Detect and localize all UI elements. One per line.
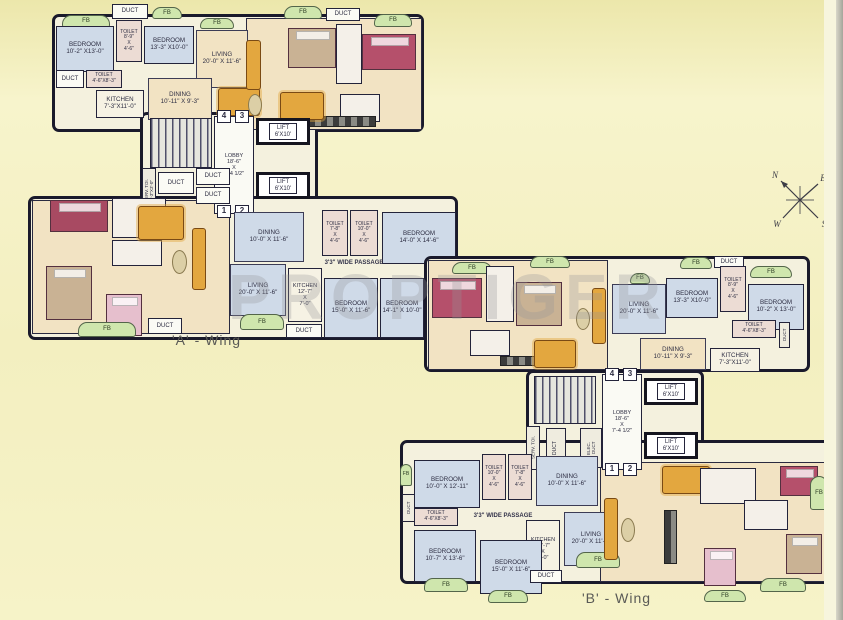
duct: DUCT <box>158 172 194 194</box>
lift: LIFT 6'X10' <box>644 432 698 459</box>
compass-n: N <box>771 170 779 180</box>
balcony-fb: FB <box>78 322 136 337</box>
rug <box>576 308 590 330</box>
sofa <box>246 40 261 90</box>
room-dining: DINING 10'-0" X 11'-6" <box>536 456 598 506</box>
room-bedroom: BEDROOM 10'-0" X 12'-11" <box>414 460 480 508</box>
lift-label: LIFT 6'X10' <box>657 437 685 455</box>
duct: DUCT <box>326 8 360 21</box>
room-toilet: TOILET 4'-6"X8'-3" <box>732 320 776 338</box>
sofa <box>592 288 606 344</box>
duct: DUCT <box>286 324 322 338</box>
bed <box>432 278 482 318</box>
balcony-fb: FB <box>400 464 412 486</box>
flat-number: 3 <box>623 368 637 381</box>
bed <box>50 200 108 232</box>
room-living: LIVING 20'-0" X 11'-6" <box>230 264 286 316</box>
balcony-fb: FB <box>750 266 792 278</box>
lift: LIFT 6'X10' <box>256 118 310 145</box>
room-dining: DINING 10'-11" X 9'-3" <box>640 338 706 370</box>
room-toilet: TOILET 4'-6"X8'-3" <box>86 70 122 88</box>
sofa <box>604 498 618 560</box>
bed-pillow <box>440 281 476 290</box>
page-edge-dark <box>836 0 843 620</box>
room-bedroom: BEDROOM 15'-0" X 11'-6" <box>324 278 378 338</box>
bed-pillow <box>59 203 100 212</box>
dining-table <box>534 340 576 368</box>
balcony-fb: FB <box>530 256 570 268</box>
balcony-fb: FB <box>424 578 468 592</box>
room-toilet: TOILET 10'-0" X 4'-6" <box>482 454 506 500</box>
bed-pillow <box>371 37 409 46</box>
floorplan-page: FBDUCTFBFBBEDROOM 10'-2" X13'-0"TOILET 8… <box>0 0 843 620</box>
dining-table <box>280 92 324 120</box>
wing-b-label: 'B' - Wing <box>582 590 651 606</box>
staircase <box>534 376 596 424</box>
bed-pillow <box>112 297 138 306</box>
room-bedroom: BEDROOM 14'-1" X 10'-0" <box>380 278 424 338</box>
duct: DUCT <box>196 187 230 204</box>
balcony-fb: FB <box>152 7 182 19</box>
room-dining: DINING 10'-11" X 9'-3" <box>148 78 212 120</box>
toilet-fixtures <box>470 330 510 356</box>
bed <box>704 548 736 586</box>
room-toilet: TOILET 8'-9" X 4'-6" <box>116 20 142 62</box>
balcony-fb: FB <box>680 257 712 269</box>
lift: LIFT 6'X10' <box>256 172 310 199</box>
bed-pillow <box>792 537 818 546</box>
wing-a-label: 'A' - Wing <box>172 332 241 348</box>
duct-vertical: DUCT <box>779 322 790 348</box>
flat-number: 1 <box>605 463 619 476</box>
flat-number: 1 <box>217 205 231 218</box>
room-toilet: TOILET 7'-8" X 4'-6" <box>508 454 532 500</box>
balcony-fb: FB <box>488 590 528 603</box>
toilet-fixtures <box>112 240 162 266</box>
kitchen-counter <box>664 510 677 564</box>
staircase <box>150 118 212 168</box>
lift: LIFT 6'X10' <box>644 378 698 405</box>
flat-number: 4 <box>217 110 231 123</box>
rug <box>172 250 187 274</box>
balcony-fb: FB <box>704 590 746 602</box>
bed-pillow <box>296 31 330 40</box>
bed <box>362 34 416 70</box>
bed <box>46 266 92 320</box>
compass-w: W <box>773 219 782 229</box>
balcony-fb: FB <box>200 18 234 29</box>
flat-number: 2 <box>623 463 637 476</box>
room-kitchen: KITCHEN 7'-3"X11'-0" <box>710 348 760 372</box>
bed-pillow <box>54 269 87 278</box>
room-kitchen: KITCHEN 7'-3"X11'-0" <box>96 90 144 118</box>
bed-pillow <box>710 551 733 560</box>
duct: DUCT <box>196 168 230 185</box>
flat-number: 4 <box>605 368 619 381</box>
duct: DUCT <box>112 4 148 19</box>
toilet-fixtures <box>486 266 514 322</box>
bed-pillow <box>524 285 557 294</box>
dining-table <box>138 206 184 240</box>
room-toilet: TOILET 7'-8" X 4'-6" <box>322 210 348 256</box>
room-toilet: TOILET 4'-6"X8'-3" <box>414 508 458 526</box>
lift-label: LIFT 6'X10' <box>269 123 297 141</box>
room-bedroom: BEDROOM 13'-3" X10'-0" <box>666 278 718 318</box>
balcony-fb: FB <box>240 314 284 330</box>
balcony-fb: FB <box>630 273 650 284</box>
rug <box>621 518 635 542</box>
bed <box>786 534 822 574</box>
duct: DUCT <box>530 570 562 583</box>
bed-pillow <box>786 469 813 478</box>
room-toilet: TOILET 8'-9" X 4'-6" <box>720 266 746 312</box>
flat-number: 3 <box>235 110 249 123</box>
lift-label: LIFT 6'X10' <box>269 177 297 195</box>
balcony-fb: FB <box>374 14 412 27</box>
rug <box>248 94 262 116</box>
passage-label: 3'3" WIDE PASSAGE <box>306 258 402 268</box>
room-toilet: TOILET 10'-0" X 4'-6" <box>350 210 378 256</box>
page-edge-light <box>824 0 836 620</box>
lobby: LOBBY 18'-6" X 7'-4 1/2" <box>602 374 642 470</box>
toilet-fixtures <box>744 500 788 530</box>
lift-label: LIFT 6'X10' <box>657 383 685 401</box>
toilet-fixtures <box>336 24 362 84</box>
bed <box>516 282 562 326</box>
room-kitchen: KITCHEN 12'-7" X 7'-0" <box>288 268 322 322</box>
room-bedroom: BEDROOM 10'-7" X 13'-6" <box>414 530 476 582</box>
bed <box>288 28 336 68</box>
duct: DUCT <box>56 70 84 88</box>
room-bedroom: BEDROOM 13'-3" X10'-0" <box>144 26 194 64</box>
room-bedroom: BEDROOM 10'-2" X13'-0" <box>56 26 114 72</box>
room-dining: DINING 10'-0" X 11'-6" <box>234 212 304 262</box>
toilet-fixtures <box>700 468 756 504</box>
sofa <box>192 228 206 290</box>
balcony-fb: FB <box>760 578 806 592</box>
room-bedroom: BEDROOM 15'-0" X 11'-6" <box>480 540 542 594</box>
balcony-fb: FB <box>284 6 322 19</box>
room-living: LIVING 20'-0" X 11'-6" <box>612 284 666 334</box>
